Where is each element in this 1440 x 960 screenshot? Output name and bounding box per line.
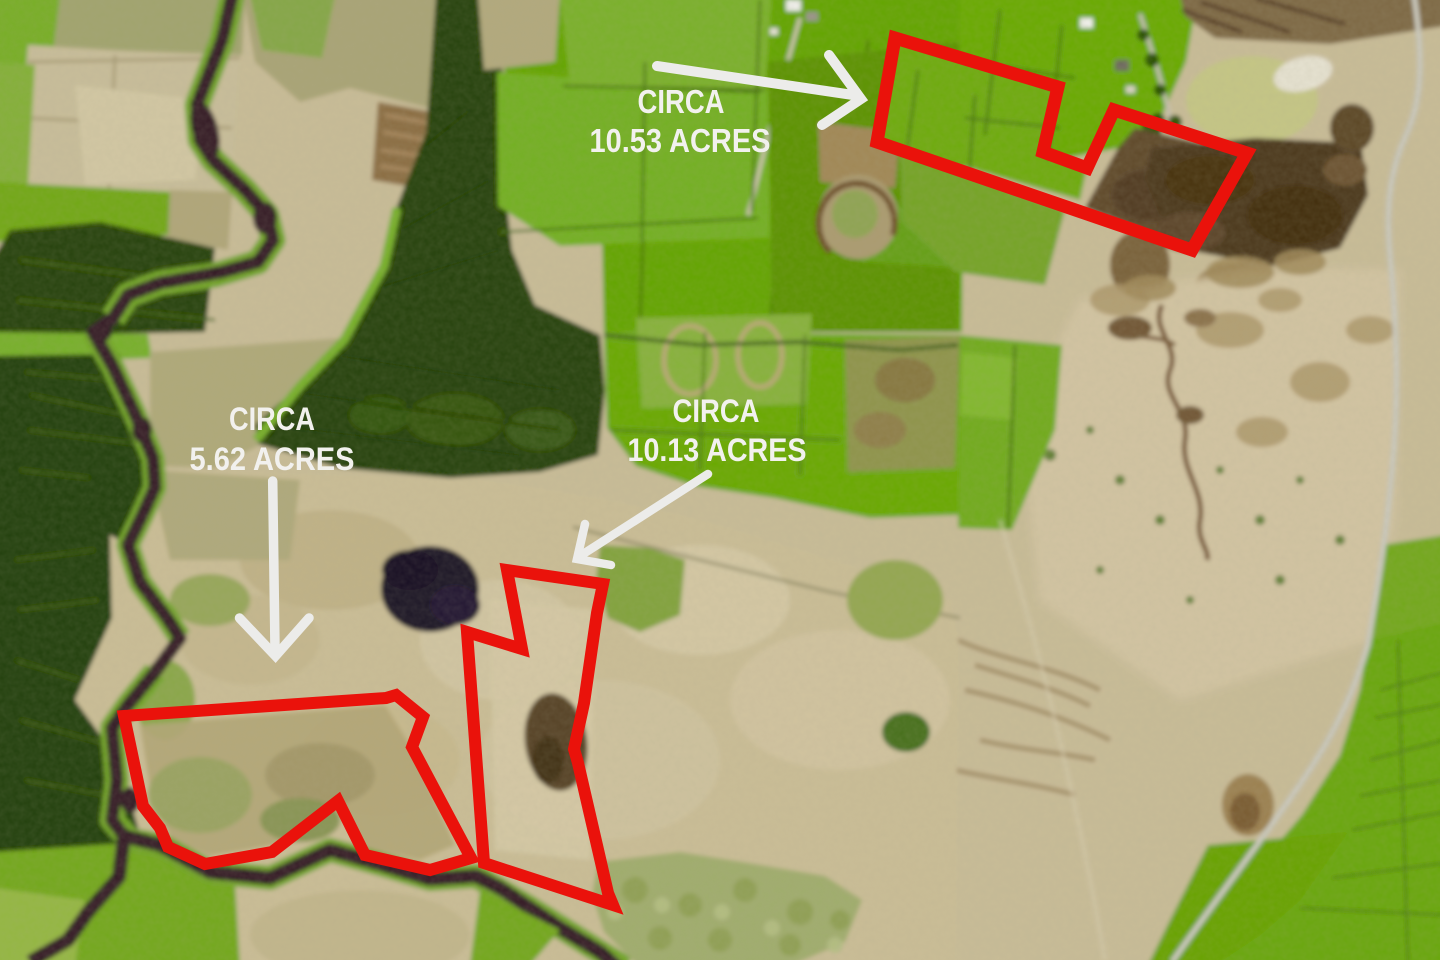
svg-text:CIRCA: CIRCA [638,83,725,120]
svg-text:10.13 ACRES: 10.13 ACRES [628,432,807,468]
svg-text:CIRCA: CIRCA [673,393,760,429]
svg-text:10.53 ACRES: 10.53 ACRES [590,122,771,159]
svg-text:CIRCA: CIRCA [229,401,315,437]
svg-text:5.62 ACRES: 5.62 ACRES [190,441,355,477]
